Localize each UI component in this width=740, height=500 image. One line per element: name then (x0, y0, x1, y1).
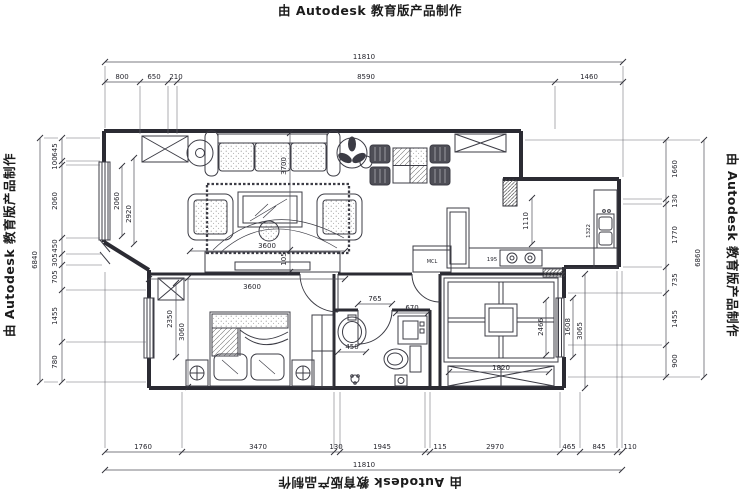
dim-top-seg: 650 (147, 73, 160, 81)
plant (337, 137, 372, 168)
kitchen-sink (597, 214, 614, 248)
side-table (187, 140, 213, 166)
dim-inner: 765 (368, 295, 381, 303)
dim-left-seg: 1455 (51, 307, 59, 325)
floor-drain (395, 375, 407, 386)
dim-top-seg: 800 (115, 73, 128, 81)
dim-left-seg: 645 (51, 143, 59, 156)
dim-left-seg: 2060 (51, 192, 59, 210)
dim-left-seg: 100 (51, 156, 59, 169)
dim-right-seg: 130 (671, 194, 679, 207)
dim-bottom-seg: 1760 (134, 443, 152, 451)
dim-top-seg: 1460 (580, 73, 598, 81)
pillow (214, 354, 247, 380)
dim-inner: 1322 (586, 224, 592, 238)
dim-left-seg: 705 (51, 270, 59, 283)
dim-right-seg: 1660 (671, 160, 679, 178)
dim-left-seg: 450 (51, 239, 59, 252)
floor-plan-drawing: MCL (0, 0, 740, 500)
dim-top-seg: 8590 (357, 73, 375, 81)
sofa-cushion (219, 143, 254, 171)
dim-bottom-total: 11810 (353, 461, 375, 469)
dim-inner: 2350 (166, 310, 174, 328)
dim-inner: 670 (405, 304, 418, 312)
dim-bottom-seg: 110 (623, 443, 636, 451)
dim-inner: 3065 (576, 322, 584, 340)
drain-plant (351, 375, 360, 385)
dim-inner: 195 (487, 257, 498, 263)
sofa-arm-right (327, 131, 340, 176)
sofa-back (218, 134, 327, 143)
dim-bottom-seg: 130 (329, 443, 342, 451)
kitchen-door-sill (543, 269, 565, 277)
washing-machine-label: MCL (427, 259, 438, 265)
bath-washer (398, 316, 427, 344)
dim-inner: 1608 (564, 318, 572, 336)
cad-floor-plan-page: MCL (0, 0, 740, 500)
nightstand-left (186, 360, 208, 386)
sofa-arm-left (205, 131, 218, 176)
dim-inner: 2920 (125, 205, 133, 223)
dim-bottom-seg: 465 (562, 443, 575, 451)
bedroom-door (300, 274, 338, 312)
dim-right-seg: 900 (671, 354, 679, 367)
dim-top-total: 11810 (353, 53, 375, 61)
dim-inner: 3060 (178, 323, 186, 341)
dim-left-total: 6840 (31, 251, 39, 269)
watermark-top: 由 Autodesk 教育版产品制作 (278, 3, 462, 18)
dim-inner: 3600 (243, 283, 261, 291)
dim-inner: 1820 (492, 364, 510, 372)
dim-bottom-seg: 1945 (373, 443, 391, 451)
dim-left-seg: 780 (51, 355, 59, 368)
dim-right-seg: 1455 (671, 310, 679, 328)
tv (235, 262, 310, 270)
dim-right-seg: 1770 (671, 226, 679, 244)
dim-inner: 2060 (113, 192, 121, 210)
dim-bottom-seg: 845 (592, 443, 605, 451)
bathroom-door (358, 310, 392, 344)
dim-top-seg: 210 (169, 73, 182, 81)
stool (259, 221, 279, 241)
dim-inner: 1110 (522, 212, 530, 230)
dim-bottom-seg: 115 (433, 443, 446, 451)
pillow (251, 354, 284, 380)
dim-right-seg: 735 (671, 273, 679, 286)
nightstand-right (292, 360, 314, 386)
dim-inner: 3600 (258, 242, 276, 250)
dim-bottom-seg: 2970 (486, 443, 504, 451)
extension-lines (44, 66, 700, 448)
dim-right-total: 6860 (694, 249, 702, 267)
dining-set (370, 145, 450, 185)
watermark-bottom: 由 Autodesk 教育版产品制作 (278, 475, 462, 490)
stove (500, 250, 542, 266)
tatami-door (412, 274, 440, 302)
dim-left-seg: 305 (51, 253, 59, 266)
dim-inner: 3700 (280, 157, 288, 175)
watermark-right: 由 Autodesk 教育版产品制作 (725, 153, 740, 337)
dim-bottom-seg: 3470 (249, 443, 267, 451)
dim-inner: 2466 (537, 318, 545, 336)
kitchen-flue (503, 179, 517, 206)
dim-inner: 450 (345, 343, 358, 351)
watermark-left: 由 Autodesk 教育版产品制作 (2, 153, 17, 337)
toilet (384, 346, 421, 372)
sofa-cushion (291, 143, 326, 171)
dim-inner: 105 (280, 252, 288, 265)
